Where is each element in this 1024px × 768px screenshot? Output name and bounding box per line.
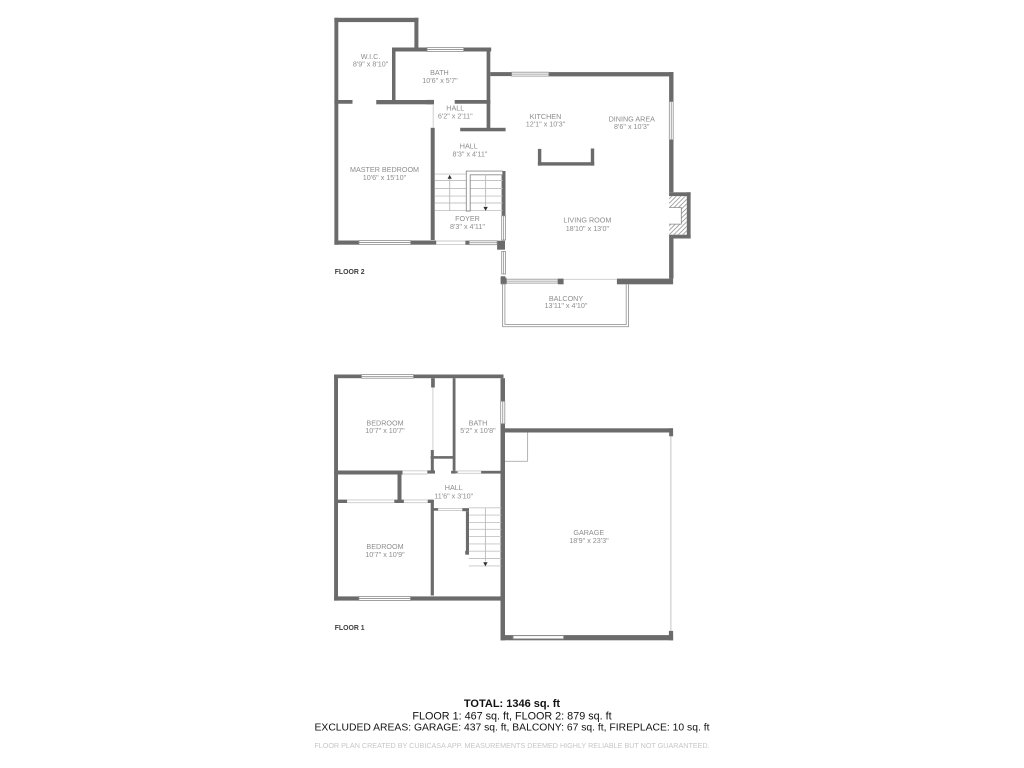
- svg-text:8'3" x 4'11": 8'3" x 4'11": [450, 222, 485, 231]
- svg-text:13'11" x 4'10": 13'11" x 4'10": [545, 301, 588, 310]
- svg-text:EXCLUDED AREAS: GARAGE: 437 sq: EXCLUDED AREAS: GARAGE: 437 sq. ft, BALC…: [315, 722, 710, 733]
- svg-text:12'1" x 10'3": 12'1" x 10'3": [526, 119, 566, 128]
- svg-text:10'7" x 10'9": 10'7" x 10'9": [365, 550, 405, 559]
- svg-text:8'6" x 10'3": 8'6" x 10'3": [614, 122, 650, 131]
- svg-text:11'6" x 3'10": 11'6" x 3'10": [434, 491, 473, 500]
- svg-text:10'7" x 10'7": 10'7" x 10'7": [365, 426, 405, 435]
- svg-text:FLOOR 1: 467 sq. ft, FLOOR 2:: FLOOR 1: 467 sq. ft, FLOOR 2: 879 sq. ft: [412, 710, 611, 722]
- svg-text:8'3" x 4'11": 8'3" x 4'11": [453, 149, 488, 158]
- svg-text:FLOOR PLAN CREATED BY CUBICASA: FLOOR PLAN CREATED BY CUBICASA APP. MEAS…: [314, 741, 709, 750]
- svg-text:FLOOR 2: FLOOR 2: [335, 269, 365, 276]
- svg-text:FLOOR 1: FLOOR 1: [335, 625, 365, 632]
- svg-text:10'6" x 5'7": 10'6" x 5'7": [422, 76, 458, 85]
- svg-text:8'9" x 8'10": 8'9" x 8'10": [353, 59, 389, 68]
- svg-text:5'2" x 10'8": 5'2" x 10'8": [460, 426, 496, 435]
- svg-text:TOTAL: 1346 sq. ft: TOTAL: 1346 sq. ft: [464, 698, 561, 710]
- svg-text:18'9" x 23'3": 18'9" x 23'3": [569, 536, 609, 545]
- svg-text:18'10" x 13'0": 18'10" x 13'0": [566, 224, 610, 233]
- svg-text:6'2" x 2'11": 6'2" x 2'11": [438, 111, 473, 120]
- svg-text:10'6" x 15'10": 10'6" x 15'10": [363, 173, 407, 182]
